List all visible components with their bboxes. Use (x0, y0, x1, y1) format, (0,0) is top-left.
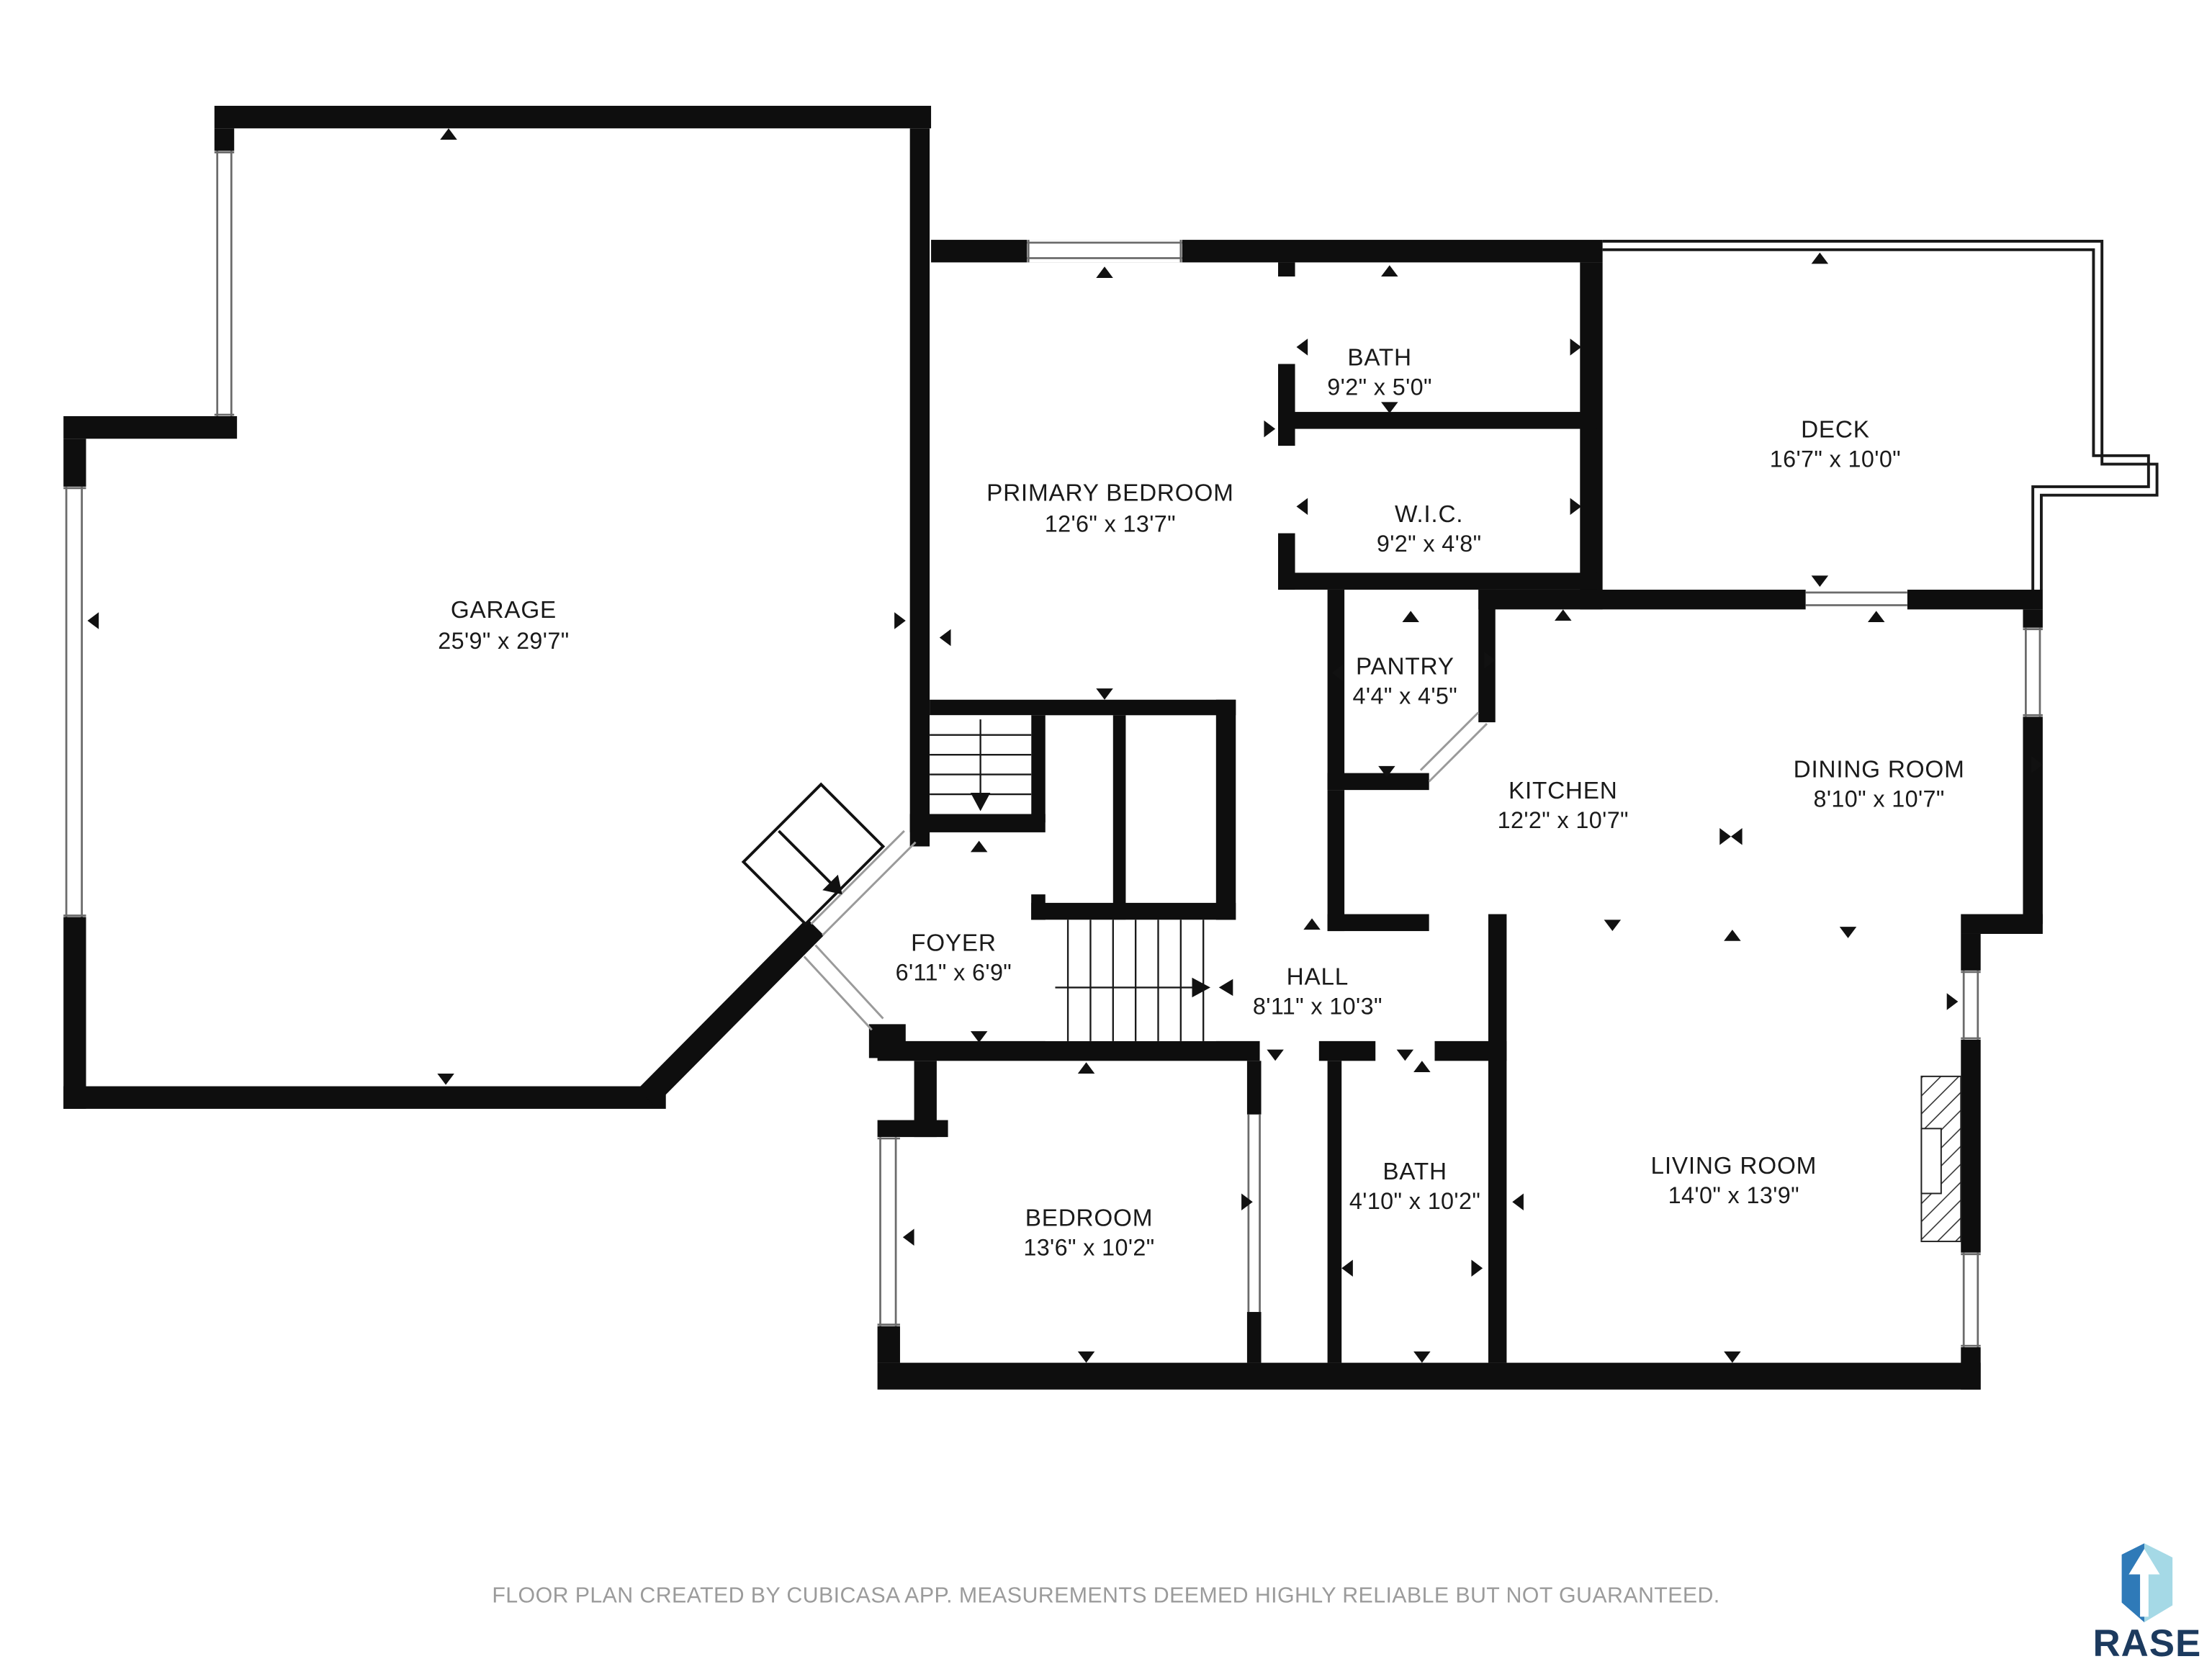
rase-logo-text: RASE (2092, 1622, 2201, 1659)
room-dim-bedroom: 13'6" x 10'2" (1023, 1235, 1154, 1261)
room-label-dining-room: DINING ROOM (1794, 757, 1965, 783)
room-dim-foyer: 6'11" x 6'9" (896, 960, 1012, 986)
room-dim-wic: 9'2" x 4'8" (1377, 531, 1482, 557)
room-dim-hall: 8'11" x 10'3" (1253, 994, 1382, 1020)
window-living-right-upper (1961, 971, 1980, 1040)
room-label-primary-bedroom: PRIMARY BEDROOM (986, 480, 1234, 507)
window-bedroom-left (878, 1137, 900, 1326)
room-label-deck: DECK (1801, 416, 1870, 443)
garage-door-opening (63, 487, 86, 917)
window-primary-bedroom-top (1027, 240, 1182, 262)
footer-disclaimer: FLOOR PLAN CREATED BY CUBICASA APP. MEAS… (492, 1584, 1719, 1608)
garage-stairs (930, 715, 1031, 814)
room-label-living-room: LIVING ROOM (1651, 1153, 1817, 1179)
floor-plan-canvas: GARAGE 25'9" x 29'7" PRIMARY BEDROOM 12'… (0, 0, 2212, 1659)
room-label-foyer: FOYER (911, 930, 997, 956)
room-dim-kitchen: 12'2" x 10'7" (1498, 807, 1629, 833)
room-dim-primary-bedroom: 12'6" x 13'7" (1045, 511, 1176, 537)
room-dim-dining-room: 8'10" x 10'7" (1813, 786, 1944, 812)
fireplace (1921, 1076, 1961, 1241)
window-dining-right (2023, 628, 2042, 716)
room-label-hall: HALL (1287, 964, 1349, 991)
room-label-pantry: PANTRY (1356, 653, 1455, 680)
window-garage-upper-left (215, 151, 234, 416)
room-dim-living-room: 14'0" x 13'9" (1668, 1182, 1799, 1208)
room-label-kitchen: KITCHEN (1509, 778, 1618, 804)
main-stairs (1046, 920, 1233, 1040)
room-label-garage: GARAGE (451, 597, 557, 624)
room-dim-deck: 16'7" x 10'0" (1770, 446, 1901, 472)
window-living-right-lower (1961, 1253, 1980, 1347)
room-dim-garage: 25'9" x 29'7" (438, 628, 569, 654)
room-label-bedroom: BEDROOM (1025, 1205, 1154, 1232)
room-label-bath-lower: BATH (1382, 1159, 1447, 1185)
room-dim-bath-lower: 4'10" x 10'2" (1349, 1188, 1480, 1214)
room-label-wic: W.I.C. (1395, 501, 1463, 528)
deck-sliding-door (1806, 590, 1907, 609)
room-dim-bath-upper: 9'2" x 5'0" (1327, 374, 1432, 400)
room-label-bath-upper: BATH (1347, 344, 1411, 371)
room-dim-pantry: 4'4" x 4'5" (1353, 683, 1458, 709)
